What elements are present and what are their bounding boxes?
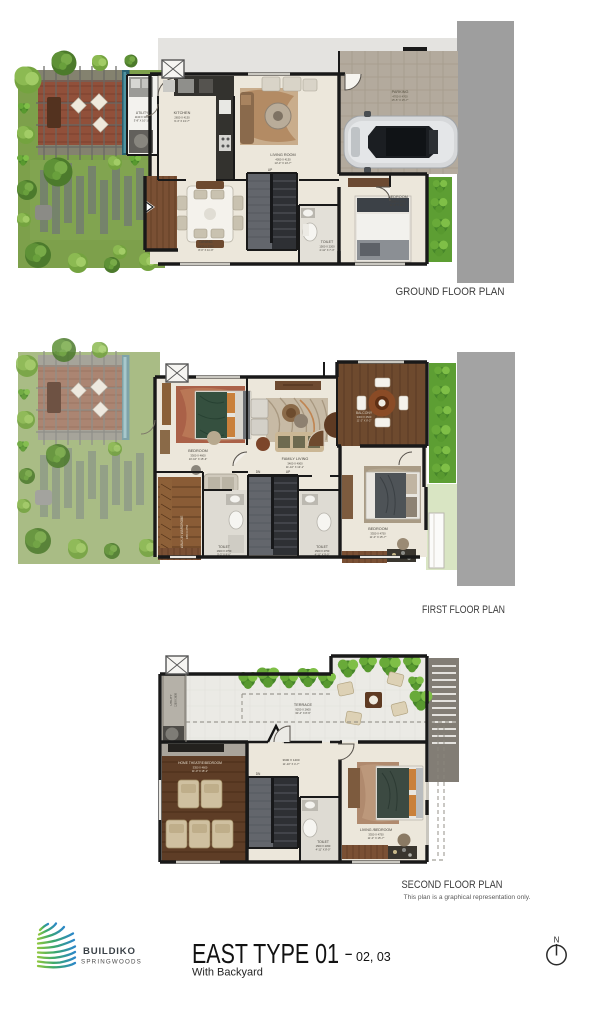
svg-text:3600 X 1400: 3600 X 1400 <box>282 758 299 762</box>
svg-text:FIRST FLOOR PLAN: FIRST FLOOR PLAN <box>422 604 505 616</box>
svg-text:BALCONY: BALCONY <box>356 411 373 415</box>
svg-text:11'-10" X 4'-7": 11'-10" X 4'-7" <box>283 762 300 766</box>
svg-text:3400 X 4000: 3400 X 4000 <box>287 462 303 466</box>
svg-text:UP: UP <box>286 470 290 474</box>
svg-text:BEDROOM: BEDROOM <box>368 527 388 531</box>
svg-text:1600 X 2750: 1600 X 2750 <box>217 549 232 553</box>
svg-text:1500 X 2200: 1500 X 2200 <box>319 244 335 248</box>
svg-text:10'-10" X 15'-3": 10'-10" X 15'-3" <box>189 457 208 461</box>
svg-text:DINING: DINING <box>199 240 212 244</box>
svg-text:This plan is a graphical repre: This plan is a graphical representation … <box>404 894 531 901</box>
svg-text:11'-0" X 15'-7": 11'-0" X 15'-7" <box>370 535 387 539</box>
svg-text:4700 X 4700: 4700 X 4700 <box>392 95 408 99</box>
svg-text:1500 X 2750: 1500 X 2750 <box>315 549 330 553</box>
svg-text:11'-2" X 8'-2": 11'-2" X 8'-2" <box>357 419 372 423</box>
svg-text:LIVING /BEDROOM: LIVING /BEDROOM <box>360 828 392 832</box>
svg-text:15'-5" X 15'-7": 15'-5" X 15'-7" <box>392 98 409 102</box>
svg-text:SPRINGWOODS: SPRINGWOODS <box>81 959 142 966</box>
svg-text:FAMILY LIVING: FAMILY LIVING <box>282 457 309 461</box>
svg-text:EAST TYPE 01: EAST TYPE 01 <box>192 938 339 969</box>
svg-text:TOILET: TOILET <box>218 545 230 549</box>
svg-text:11'-10" X 13'-1": 11'-10" X 13'-1" <box>286 465 304 469</box>
svg-text:PARKING: PARKING <box>392 90 409 94</box>
svg-text:1500 X 2450: 1500 X 2450 <box>316 844 331 848</box>
svg-text:3350 X 4600: 3350 X 4600 <box>193 765 208 769</box>
svg-text:DN: DN <box>256 470 261 474</box>
svg-text:13'-3" X 13'-7": 13'-3" X 13'-7" <box>275 161 292 165</box>
svg-text:BUILDIKO: BUILDIKO <box>83 946 136 957</box>
svg-text:4'-11" X 8'-0": 4'-11" X 8'-0" <box>316 848 331 852</box>
svg-text:02, 03: 02, 03 <box>356 950 391 964</box>
svg-text:2650 X 4130: 2650 X 4130 <box>174 115 190 119</box>
svg-text:TOILET: TOILET <box>321 240 334 244</box>
svg-text:BEDROOM: BEDROOM <box>388 195 408 199</box>
svg-text:TOILET: TOILET <box>316 545 328 549</box>
svg-text:UTILITY: UTILITY <box>136 111 149 115</box>
svg-text:1350 X 2750: 1350 X 2750 <box>186 524 189 539</box>
svg-text:9'-4" X 13'-7": 9'-4" X 13'-7" <box>174 119 190 123</box>
svg-text:BEDROOM: BEDROOM <box>188 449 208 453</box>
svg-text:UP: UP <box>268 168 272 172</box>
svg-text:3350 X 4750: 3350 X 4750 <box>368 832 384 836</box>
svg-text:3350 X 3200: 3350 X 3200 <box>390 200 406 204</box>
svg-text:TOILET: TOILET <box>317 840 329 844</box>
svg-text:3'-8" X 10'-10": 3'-8" X 10'-10" <box>134 118 150 122</box>
svg-text:TERRACE: TERRACE <box>294 703 313 707</box>
svg-text:WALK-IN WARDROBE: WALK-IN WARDROBE <box>180 516 184 549</box>
svg-text:30'-4" X 8'-6": 30'-4" X 8'-6" <box>295 711 311 715</box>
svg-text:4050 X 4130: 4050 X 4130 <box>275 158 291 162</box>
svg-text:GROUND FLOOR PLAN: GROUND FLOOR PLAN <box>396 286 505 298</box>
svg-text:4'-11" X 7'-3": 4'-11" X 7'-3" <box>319 248 334 252</box>
svg-text:1250 X 2600: 1250 X 2600 <box>175 693 178 707</box>
svg-text:11'-0" X 10'-6": 11'-0" X 10'-6" <box>390 203 407 207</box>
svg-text:UTILITY: UTILITY <box>169 694 173 705</box>
svg-text:HOME THEATRE/BEDROOM: HOME THEATRE/BEDROOM <box>178 761 222 765</box>
svg-text:3300 X 4600: 3300 X 4600 <box>190 454 206 458</box>
svg-text:11'-0" X 15'-7": 11'-0" X 15'-7" <box>368 836 385 840</box>
svg-text:3350 X 4750: 3350 X 4750 <box>370 532 386 536</box>
svg-text:2430 X 3350: 2430 X 3350 <box>198 245 214 249</box>
svg-text:N: N <box>554 936 560 945</box>
svg-text:KITCHEN: KITCHEN <box>174 111 191 115</box>
svg-text:–: – <box>345 946 352 961</box>
svg-text:LIVING ROOM: LIVING ROOM <box>270 153 295 157</box>
svg-text:9250 X 2600: 9250 X 2600 <box>295 708 311 712</box>
svg-text:11'-0" X 15'-1": 11'-0" X 15'-1" <box>192 769 208 773</box>
svg-text:8'-0" X 11'-0": 8'-0" X 11'-0" <box>198 248 213 252</box>
svg-text:DN: DN <box>256 772 261 776</box>
svg-text:With Backyard: With Backyard <box>192 967 263 979</box>
svg-text:SECOND FLOOR PLAN: SECOND FLOOR PLAN <box>402 879 503 891</box>
svg-text:3300 X 2500: 3300 X 2500 <box>357 415 372 419</box>
